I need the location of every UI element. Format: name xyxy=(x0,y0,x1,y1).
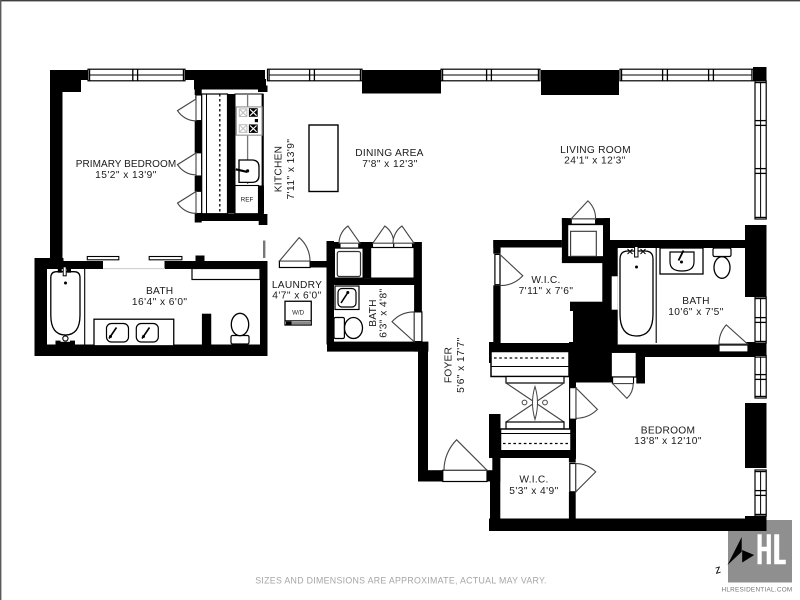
svg-text:W/D: W/D xyxy=(292,310,305,317)
svg-text:15'2" x 13'9": 15'2" x 13'9" xyxy=(95,170,157,181)
svg-text:W.I.C.: W.I.C. xyxy=(519,474,548,485)
svg-text:4'7" x 6'0": 4'7" x 6'0" xyxy=(272,291,322,302)
svg-text:5'6" x 17'7": 5'6" x 17'7" xyxy=(456,337,467,393)
svg-text:KITCHEN: KITCHEN xyxy=(273,146,284,192)
svg-text:PRIMARY BEDROOM: PRIMARY BEDROOM xyxy=(76,159,176,170)
svg-text:10'6" x 7'5": 10'6" x 7'5" xyxy=(668,307,724,318)
svg-text:6'3" x 4'8": 6'3" x 4'8" xyxy=(379,288,390,338)
svg-text:LIVING ROOM: LIVING ROOM xyxy=(560,145,631,156)
svg-text:REF: REF xyxy=(241,196,254,203)
svg-text:7'11" x 7'6": 7'11" x 7'6" xyxy=(519,286,574,297)
svg-text:W.I.C.: W.I.C. xyxy=(531,275,560,286)
svg-text:DINING AREA: DINING AREA xyxy=(355,148,423,159)
svg-text:BEDROOM: BEDROOM xyxy=(641,425,695,436)
svg-text:FOYER: FOYER xyxy=(444,347,455,383)
svg-text:16'4" x 6'0": 16'4" x 6'0" xyxy=(132,297,188,308)
svg-text:13'8" x 12'10": 13'8" x 12'10" xyxy=(634,436,702,447)
svg-text:LAUNDRY: LAUNDRY xyxy=(272,280,322,291)
svg-text:24'1" x 12'3": 24'1" x 12'3" xyxy=(564,156,626,167)
svg-text:BATH: BATH xyxy=(146,286,173,297)
svg-text:BATH: BATH xyxy=(368,299,379,326)
svg-text:SIZES AND DIMENSIONS ARE APPRO: SIZES AND DIMENSIONS ARE APPROXIMATE, AC… xyxy=(255,576,547,586)
svg-text:5'3" x 4'9": 5'3" x 4'9" xyxy=(509,486,559,497)
svg-text:BATH: BATH xyxy=(682,296,709,307)
svg-text:HLRESIDENTIAL.COM: HLRESIDENTIAL.COM xyxy=(721,586,792,593)
svg-text:7'11" x 13'9": 7'11" x 13'9" xyxy=(286,139,297,200)
svg-text:7'8" x 12'3": 7'8" x 12'3" xyxy=(362,159,418,170)
